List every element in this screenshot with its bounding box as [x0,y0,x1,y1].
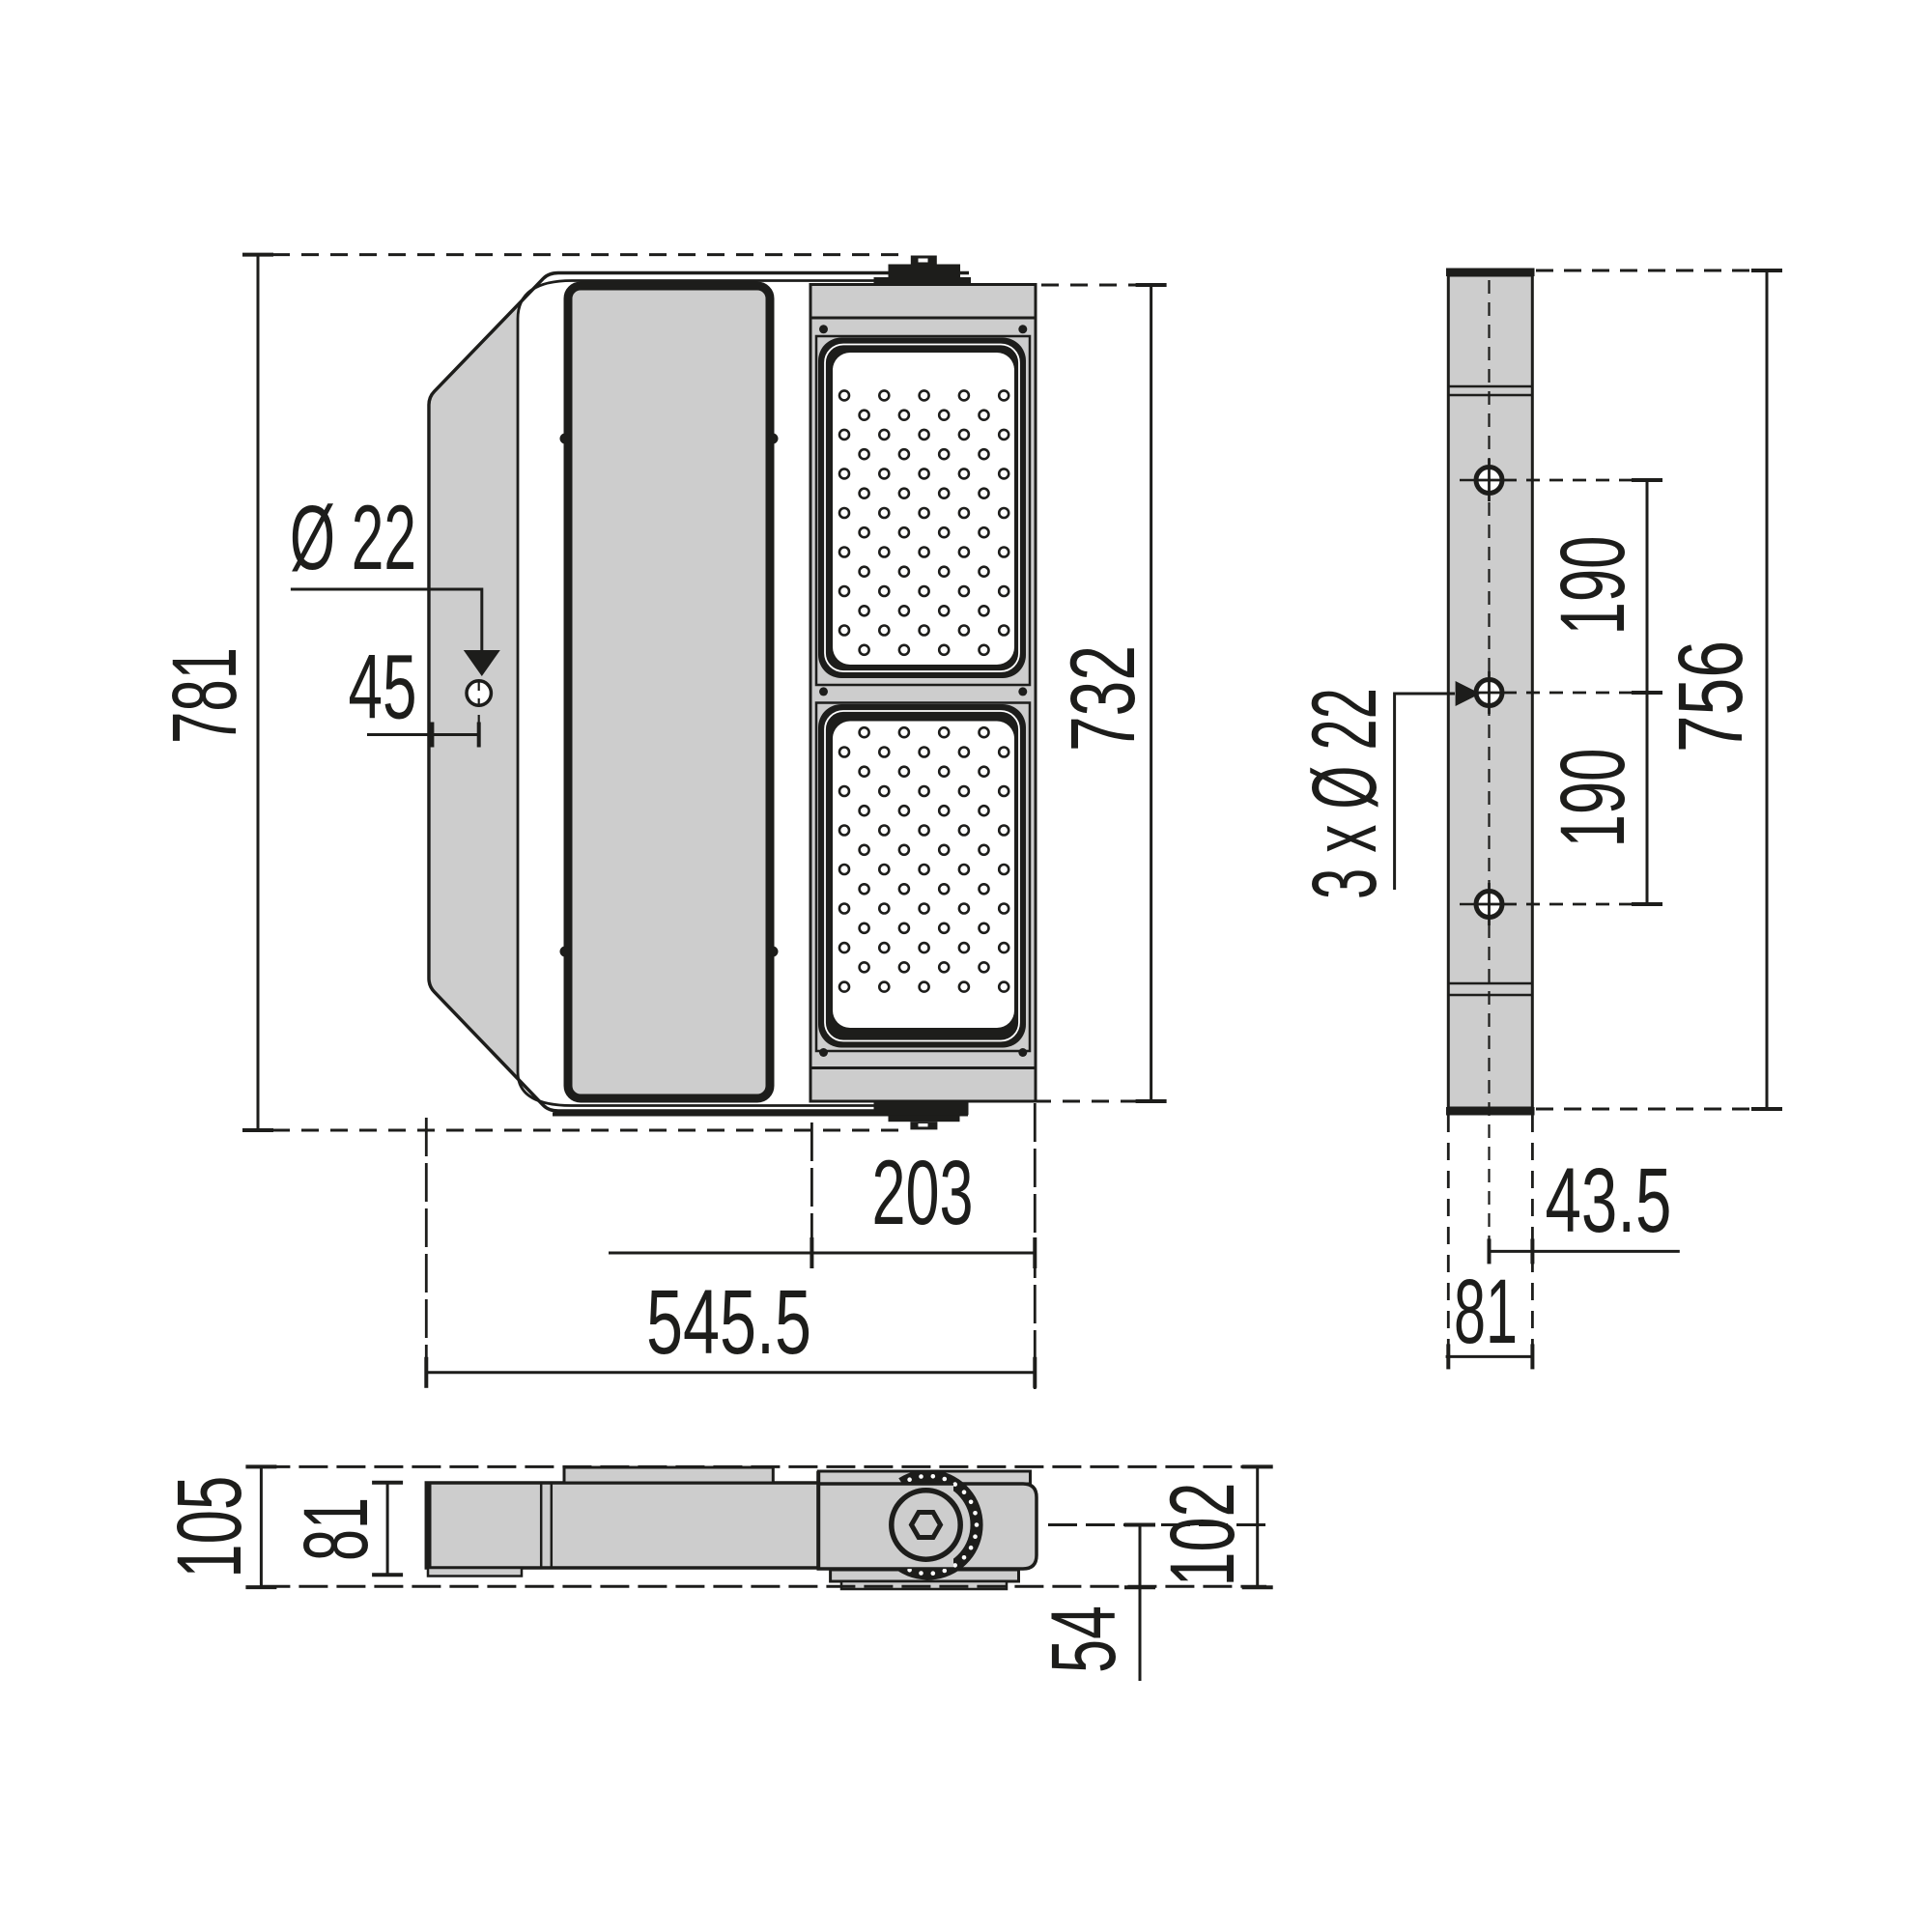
svg-text:190: 190 [1542,749,1644,848]
svg-text:756: 756 [1660,640,1762,753]
svg-text:203: 203 [872,1142,974,1244]
svg-text:Ø 22: Ø 22 [290,487,416,589]
svg-text:102: 102 [1151,1483,1254,1587]
svg-text:545.5: 545.5 [646,1271,811,1374]
svg-text:3 x Ø 22: 3 x Ø 22 [1293,688,1396,899]
svg-text:732: 732 [1052,645,1154,752]
svg-text:45: 45 [349,636,417,738]
svg-text:54: 54 [1033,1605,1135,1673]
svg-text:190: 190 [1542,536,1644,636]
svg-text:81: 81 [1454,1261,1518,1363]
svg-text:105: 105 [158,1476,261,1578]
svg-text:781: 781 [154,647,256,744]
svg-text:43.5: 43.5 [1546,1150,1672,1252]
svg-text:81: 81 [285,1497,387,1561]
